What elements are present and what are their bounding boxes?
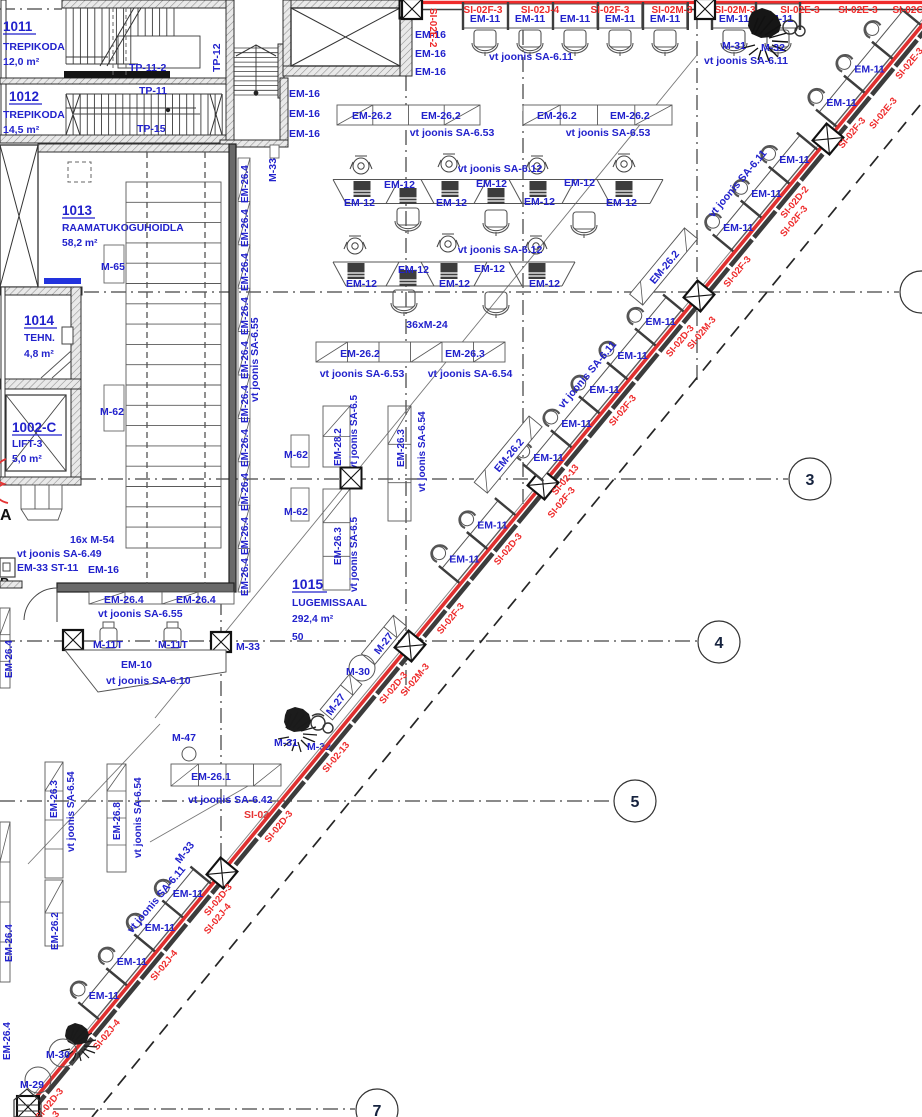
svg-text:TREPIKODA: TREPIKODA [3,109,65,121]
svg-text:EM-11: EM-11 [560,13,591,25]
svg-text:EM-12: EM-12 [476,178,507,190]
svg-text:vt joonis SA-6.11: vt joonis SA-6.11 [489,51,573,63]
svg-text:vt joonis SA-6.53: vt joonis SA-6.53 [410,127,495,139]
svg-text:12,0 m²: 12,0 m² [3,56,40,68]
svg-text:EM-33 ST-11: EM-33 ST-11 [17,562,78,574]
svg-text:vt joonis SA-6.5: vt joonis SA-6.5 [349,517,360,592]
svg-text:EM-28.2: EM-28.2 [333,428,344,466]
svg-text:RAAMATUKOGUHOIDLA: RAAMATUKOGUHOIDLA [62,223,184,234]
svg-text:EM-16: EM-16 [88,564,119,576]
svg-text:EM-11: EM-11 [645,316,676,328]
svg-text:vt joonis SA-6.53: vt joonis SA-6.53 [320,368,405,380]
svg-text:EM-11: EM-11 [449,554,480,566]
svg-text:EM-10: EM-10 [121,659,152,671]
svg-text:EM-11: EM-11 [89,990,120,1002]
svg-text:1015: 1015 [292,576,323,592]
svg-text:EM-26.4: EM-26.4 [240,473,251,511]
svg-text:EM-11: EM-11 [173,888,204,900]
svg-text:EM-26.2: EM-26.2 [340,348,380,360]
svg-text:M-62: M-62 [100,406,124,418]
svg-text:M-32: M-32 [761,42,785,54]
svg-text:TEHN.: TEHN. [24,333,55,344]
svg-text:vt joonis SA-6.12: vt joonis SA-6.12 [458,163,543,175]
svg-text:vt joonis SA-6.53: vt joonis SA-6.53 [566,127,651,139]
svg-text:EM-26.4: EM-26.4 [240,558,251,596]
svg-text:EM-11: EM-11 [723,222,754,234]
svg-text:LUGEMISSAAL: LUGEMISSAAL [292,598,367,609]
svg-text:7: 7 [373,1103,382,1117]
svg-text:EM-11: EM-11 [617,350,648,362]
svg-text:TP-11: TP-11 [139,85,167,97]
svg-text:EM-11: EM-11 [751,188,782,200]
svg-text:vt joonis SA-6.54: vt joonis SA-6.54 [66,771,77,852]
svg-text:EM-11: EM-11 [561,418,592,430]
svg-text:vt joonis SA-6.54: vt joonis SA-6.54 [428,368,513,380]
svg-text:1013: 1013 [62,203,93,218]
svg-text:EM-16: EM-16 [289,88,320,100]
svg-text:M-31: M-31 [274,737,298,749]
svg-text:1002-C: 1002-C [12,420,57,435]
svg-text:EM-26.4: EM-26.4 [2,1022,13,1060]
svg-text:EM-16: EM-16 [289,128,320,140]
svg-text:EM-16: EM-16 [415,48,446,60]
svg-text:SI-02M-3: SI-02M-3 [651,5,693,16]
svg-text:EM-26.4: EM-26.4 [240,253,251,291]
svg-text:EM-12: EM-12 [344,197,375,209]
svg-text:EM-26.4: EM-26.4 [240,165,251,203]
svg-text:vt joonis SA-6.10: vt joonis SA-6.10 [106,675,191,687]
svg-text:36xM-24: 36xM-24 [406,319,448,331]
svg-text:SI-02E-2: SI-02E-2 [427,8,438,48]
svg-text:vt joonis SA-6.5: vt joonis SA-6.5 [349,395,360,470]
svg-text:EM-11: EM-11 [477,520,508,532]
svg-text:M-33: M-33 [267,158,279,182]
svg-text:EM-11: EM-11 [145,922,176,934]
svg-text:SI-02M-3: SI-02M-3 [714,5,756,16]
svg-text:EM-11: EM-11 [117,956,148,968]
svg-text:M-29: M-29 [20,1079,44,1091]
svg-text:1014: 1014 [24,313,55,328]
svg-text:EM-12: EM-12 [529,278,560,290]
svg-text:M-11T: M-11T [93,639,123,651]
svg-text:292,4 m²: 292,4 m² [292,614,334,625]
svg-text:EM-12: EM-12 [564,177,595,189]
svg-text:vt joonis SA-6.11: vt joonis SA-6.11 [704,55,788,67]
svg-text:EM-12: EM-12 [524,196,555,208]
svg-text:EM-26.3: EM-26.3 [396,429,407,467]
svg-text:EM-12: EM-12 [346,278,377,290]
svg-text:EM-26.2: EM-26.2 [610,110,650,122]
svg-text:M-47: M-47 [172,732,196,744]
svg-text:EM-26.4: EM-26.4 [240,209,251,247]
svg-text:vt joonis SA-6.42: vt joonis SA-6.42 [188,794,273,806]
svg-text:EM-16: EM-16 [289,108,320,120]
svg-text:EM-26.3: EM-26.3 [333,527,344,565]
svg-text:EM-12: EM-12 [474,263,505,275]
svg-text:M-62: M-62 [284,506,308,518]
svg-text:EM-26.4: EM-26.4 [104,594,144,606]
svg-text:M-33: M-33 [236,641,260,653]
svg-text:4: 4 [715,635,724,652]
svg-text:58,2 m²: 58,2 m² [62,238,98,249]
svg-text:EM-11: EM-11 [589,384,620,396]
svg-text:1012: 1012 [9,89,39,104]
svg-text:EM-26.3: EM-26.3 [49,780,60,818]
svg-text:EM-26.4: EM-26.4 [240,429,251,467]
svg-text:TP-11-2: TP-11-2 [129,62,167,74]
svg-text:14,5 m²: 14,5 m² [3,124,40,136]
svg-text:1011: 1011 [3,19,33,34]
svg-text:SI-02C: SI-02C [892,5,922,16]
svg-text:LIFT-3: LIFT-3 [12,439,43,450]
svg-text:SI-02F-3: SI-02F-3 [591,5,630,16]
svg-text:5,0 m²: 5,0 m² [12,454,42,465]
svg-text:3: 3 [806,472,815,489]
svg-text:TREPIKODA: TREPIKODA [3,41,65,53]
svg-text:SI-02F-3: SI-02F-3 [464,5,503,16]
svg-text:TP-12: TP-12 [211,43,223,72]
svg-text:EM-12: EM-12 [436,197,467,209]
svg-text:SI-02J-4: SI-02J-4 [521,5,560,16]
svg-text:vt joonis SA-6.12: vt joonis SA-6.12 [458,244,543,256]
svg-text:EM-11: EM-11 [533,452,564,464]
svg-text:50: 50 [292,632,304,643]
svg-text:EM-26.2: EM-26.2 [421,110,461,122]
svg-text:EM-26.4: EM-26.4 [240,517,251,555]
svg-text:EM-26.3: EM-26.3 [445,348,485,360]
svg-text:vt joonis SA-6.54: vt joonis SA-6.54 [417,411,428,492]
svg-text:EM-12: EM-12 [398,264,429,276]
svg-text:TP-15: TP-15 [137,123,166,135]
svg-text:M-30: M-30 [46,1049,70,1061]
svg-text:vt joonis SA-6.55: vt joonis SA-6.55 [249,317,261,402]
svg-text:M-31: M-31 [722,40,746,52]
svg-text:vt joonis SA-6.55: vt joonis SA-6.55 [98,608,183,620]
svg-text:A: A [0,507,12,524]
svg-text:SI-02E-3: SI-02E-3 [780,5,820,16]
svg-text:4,8 m²: 4,8 m² [24,349,54,360]
svg-text:EM-12: EM-12 [606,197,637,209]
svg-text:M-62: M-62 [284,449,308,461]
svg-text:16x M-54: 16x M-54 [70,534,115,546]
svg-text:EM-26.2: EM-26.2 [352,110,392,122]
svg-text:EM-16: EM-16 [415,66,446,78]
svg-text:EM-26.2: EM-26.2 [537,110,577,122]
svg-text:EM-26.2: EM-26.2 [50,912,61,950]
svg-text:EM-11: EM-11 [854,63,885,75]
svg-text:5: 5 [631,794,640,811]
svg-text:SI-02E-3: SI-02E-3 [838,5,878,16]
svg-text:EM-26.1: EM-26.1 [191,771,231,783]
svg-text:EM-11: EM-11 [826,97,857,109]
svg-text:EM-11: EM-11 [779,154,810,166]
svg-text:vt joonis SA-6.54: vt joonis SA-6.54 [133,777,144,858]
svg-text:EM-12: EM-12 [439,278,470,290]
svg-text:EM-12: EM-12 [384,179,415,191]
svg-text:M-11T: M-11T [158,639,188,651]
svg-text:EM-26.4: EM-26.4 [176,594,216,606]
svg-text:EM-26.4: EM-26.4 [4,924,15,962]
svg-text:EM-26.4: EM-26.4 [4,640,15,678]
svg-text:EM-26.8: EM-26.8 [112,802,123,840]
svg-text:M-65: M-65 [101,261,125,273]
svg-text:vt joonis SA-6.49: vt joonis SA-6.49 [17,548,102,560]
